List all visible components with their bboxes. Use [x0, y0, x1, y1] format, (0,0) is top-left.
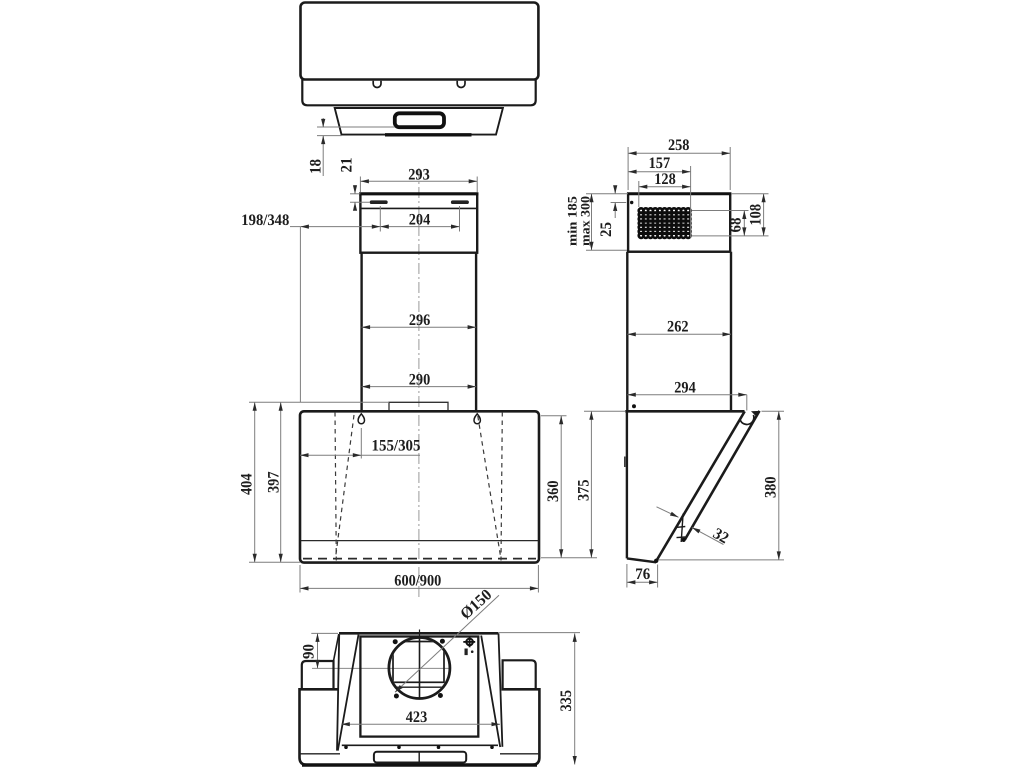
svg-text:68: 68: [728, 218, 745, 233]
svg-text:600/900: 600/900: [394, 572, 441, 589]
svg-text:18: 18: [308, 159, 325, 174]
svg-text:90: 90: [301, 644, 318, 659]
svg-text:423: 423: [406, 709, 428, 726]
svg-text:375: 375: [576, 480, 593, 502]
svg-text:157: 157: [649, 155, 671, 172]
svg-text:296: 296: [409, 312, 431, 329]
svg-text:294: 294: [674, 379, 696, 396]
svg-text:108: 108: [748, 204, 765, 226]
svg-text:204: 204: [409, 212, 431, 229]
svg-text:155/305: 155/305: [372, 438, 421, 455]
svg-text:380: 380: [763, 477, 780, 499]
svg-text:397: 397: [266, 472, 283, 494]
svg-text:25: 25: [598, 222, 615, 237]
svg-text:262: 262: [667, 319, 689, 336]
svg-text:max 300: max 300: [578, 196, 593, 246]
svg-text:360: 360: [545, 481, 562, 503]
svg-text:258: 258: [668, 137, 690, 154]
svg-text:290: 290: [409, 371, 431, 388]
svg-text:76: 76: [635, 566, 650, 583]
svg-text:128: 128: [654, 171, 676, 188]
svg-text:404: 404: [239, 474, 256, 496]
svg-text:32: 32: [710, 525, 731, 547]
svg-text:198/348: 198/348: [241, 212, 289, 229]
svg-text:293: 293: [408, 167, 430, 184]
svg-text:335: 335: [558, 690, 575, 712]
svg-text:21: 21: [339, 158, 356, 173]
